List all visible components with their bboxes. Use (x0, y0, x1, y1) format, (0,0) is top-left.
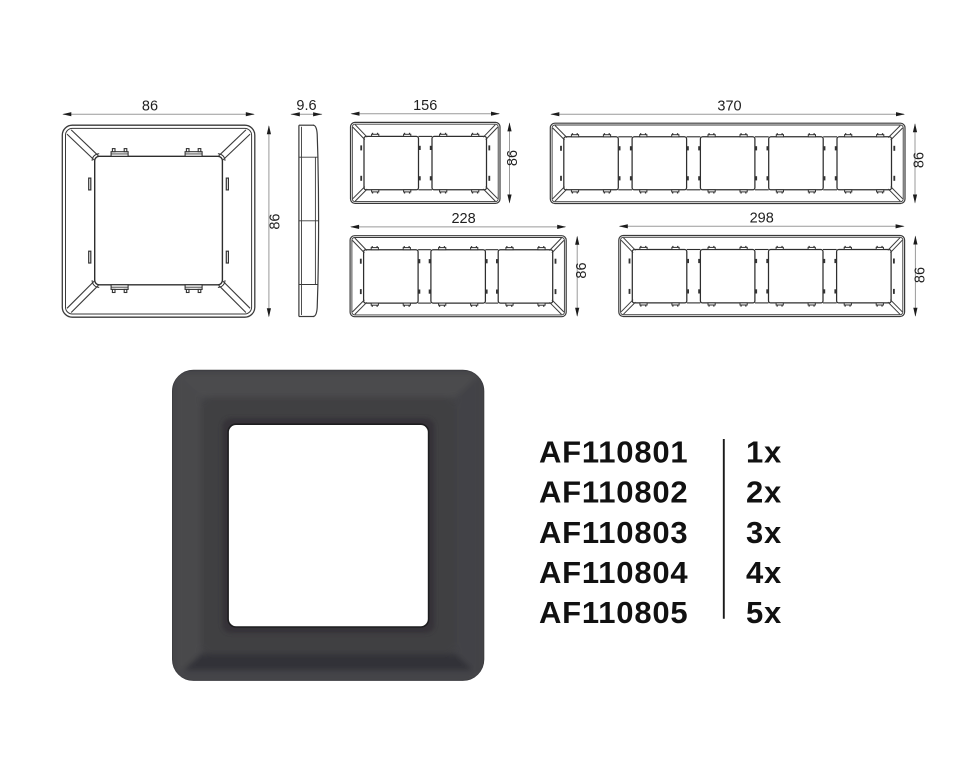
svg-text:3x: 3x (746, 515, 782, 550)
svg-text:1x: 1x (746, 434, 782, 469)
svg-text:AF110805: AF110805 (539, 595, 688, 630)
svg-text:AF110801: AF110801 (539, 434, 688, 469)
svg-text:86: 86 (574, 262, 590, 278)
svg-text:228: 228 (451, 211, 475, 227)
svg-text:AF110802: AF110802 (539, 475, 688, 510)
svg-text:AF110803: AF110803 (539, 515, 688, 550)
svg-text:AF110804: AF110804 (539, 555, 688, 590)
svg-text:2x: 2x (746, 475, 782, 510)
svg-text:86: 86 (505, 150, 521, 166)
svg-text:156: 156 (413, 98, 437, 114)
svg-text:4x: 4x (746, 555, 782, 590)
svg-text:5x: 5x (746, 595, 782, 630)
svg-text:86: 86 (142, 98, 158, 114)
svg-text:370: 370 (717, 98, 741, 114)
svg-text:86: 86 (912, 267, 928, 283)
svg-text:86: 86 (268, 214, 284, 230)
svg-text:86: 86 (912, 152, 928, 168)
svg-text:298: 298 (750, 210, 774, 226)
svg-text:9.6: 9.6 (296, 98, 316, 114)
